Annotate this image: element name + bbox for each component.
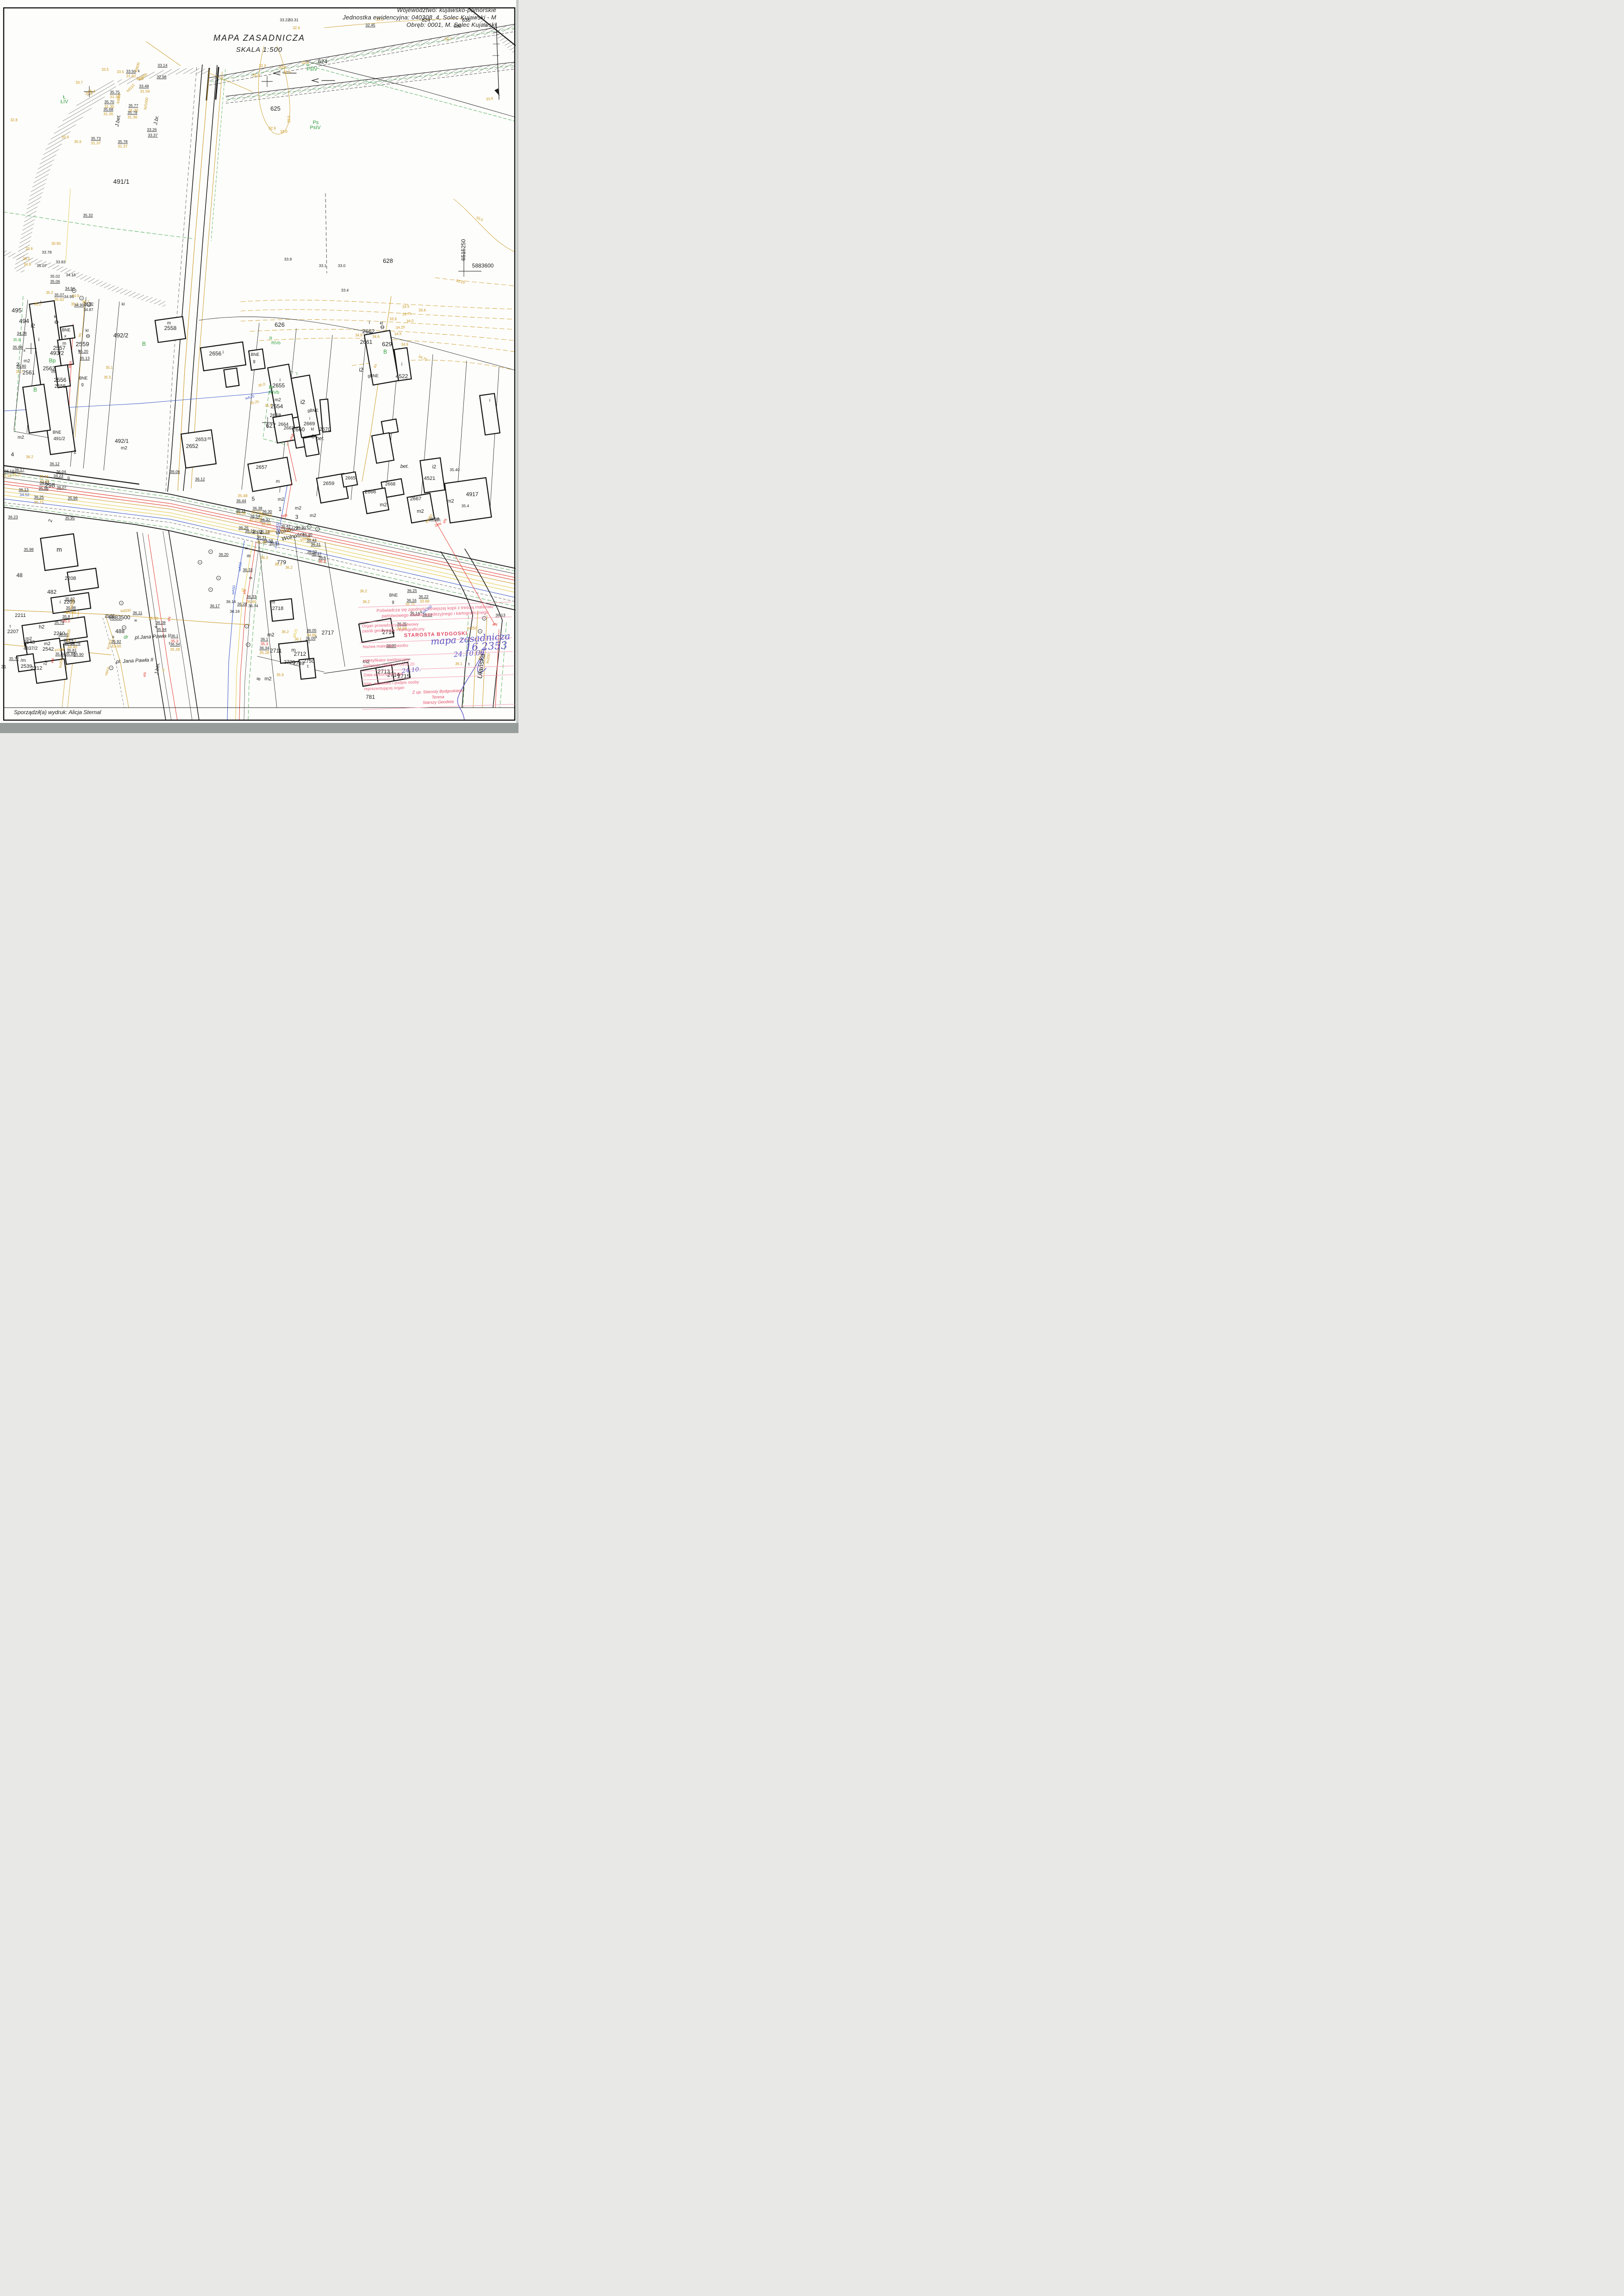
landuse-label: R xyxy=(269,336,273,341)
houses-label: 4 xyxy=(11,451,14,458)
header-district: Obręb: 0001, M. Solec Kujawski xyxy=(343,21,496,29)
coords-label: 6515250 xyxy=(460,239,467,261)
elevations-label: 35.8 xyxy=(319,559,326,564)
parcels-label: 2750 xyxy=(303,659,314,664)
elevations-label: 31.36 xyxy=(127,115,137,119)
parcels-label: 2211 xyxy=(15,613,26,618)
landuse-label: g xyxy=(67,475,69,480)
sheet-header: Województwo: kujawsko-pomorskie Jednostk… xyxy=(343,6,496,29)
houses-label: 3 xyxy=(295,514,299,520)
elevations-label: 35.58 xyxy=(148,616,158,621)
parcels-label: 2539 xyxy=(21,664,32,669)
stamp-id-value: P.0403.20 xyxy=(396,662,415,667)
landuse-label: m xyxy=(56,546,62,553)
elevations-label: 36.17 xyxy=(210,604,220,608)
landuse-label: i xyxy=(369,320,370,325)
elevations-label: 35.94 xyxy=(156,627,167,632)
landuse-label: m xyxy=(276,479,280,484)
elevations-label: 33.31 xyxy=(288,18,299,22)
contours-label: 33.0 xyxy=(287,116,291,123)
header-voivodeship: Województwo: kujawsko-pomorskie xyxy=(343,6,496,14)
elevations-label: 36.34 xyxy=(170,642,180,647)
contours-label: 32.9 xyxy=(293,26,300,30)
landuse-label: BNE xyxy=(79,376,88,380)
landuse-label: i xyxy=(280,378,281,383)
landuse-label: h2 xyxy=(39,624,44,630)
landuse-label: m2 xyxy=(18,435,24,440)
parcels-label: 4522 xyxy=(396,373,408,380)
contours-label: 33.6 xyxy=(25,247,33,251)
streets-label: bet. xyxy=(316,436,325,442)
elevations-label: 33.78 xyxy=(42,250,52,255)
landuse-label: gBNE xyxy=(368,373,379,378)
elevations-label: 35.73 xyxy=(91,136,101,141)
parcels-label: 2666 xyxy=(365,489,376,495)
elevations-label: 36.20 xyxy=(219,552,229,557)
elevations-label: 35.68 xyxy=(103,107,113,112)
contours-label: 35.6 xyxy=(13,338,20,342)
contours-label: 34.5 xyxy=(394,331,402,336)
landuse-label: m2 xyxy=(380,502,387,508)
contours-label: 35.2 xyxy=(46,291,53,295)
contours-label: 36.2 xyxy=(26,455,33,459)
landuse-label: /m xyxy=(20,658,25,663)
contours-label: 32.9 xyxy=(269,126,276,131)
map-title: MAPA ZASADNICZA xyxy=(204,33,315,43)
contours-label: 36.2 xyxy=(281,630,289,634)
elevations-label: 36.1 xyxy=(171,634,179,638)
elevations-label: 36.18 xyxy=(230,609,240,614)
parcels-label: 2556 xyxy=(54,377,67,383)
sheet-footer: Sporządził(a) wydruk: Alicja Sternal xyxy=(14,709,101,716)
parcels-label: 2555 xyxy=(55,384,66,389)
parcels-label: 48 xyxy=(16,572,23,579)
contours-label: 36.2 xyxy=(362,600,370,604)
elevations-label: 32.34 xyxy=(261,522,271,526)
contours-label: 34.6 xyxy=(372,335,380,339)
parcels-label: 627 xyxy=(266,422,276,429)
contours-label: 31.9 xyxy=(283,70,291,75)
parcels-label: 4917 xyxy=(466,491,479,498)
elevations-label: 34.87 xyxy=(83,307,94,312)
elevations-label: 36.28 xyxy=(237,602,247,606)
elevations-label: 34.94 xyxy=(65,286,75,291)
elevations-label: 34.52 xyxy=(19,492,30,497)
landuse-label: i xyxy=(38,337,39,342)
landuse-label: BNE xyxy=(53,430,62,435)
landuse-label: m xyxy=(291,647,295,653)
contours-label: 35.5 xyxy=(265,404,272,408)
landuse-label: i xyxy=(309,416,310,421)
elevations-label: 34.23 xyxy=(53,473,63,478)
landuse-label: PsIV xyxy=(310,125,321,131)
contours-label: 33.5 xyxy=(101,68,109,72)
contours-label: 36.2 xyxy=(360,589,367,593)
elevations-label: 36.33 xyxy=(246,594,256,599)
parcels-label: 492/2 xyxy=(113,332,129,339)
parcels-label: 2667 xyxy=(410,496,421,502)
elevations-label: 36.51 xyxy=(269,541,280,545)
elevations-label: 36.17 xyxy=(14,467,25,472)
elevations-label: 35.70 xyxy=(104,100,114,104)
contours-label: 34.0 xyxy=(406,318,414,323)
elevations-label: 31.37 xyxy=(118,144,128,149)
elevations-label: 35.78 xyxy=(118,139,128,144)
houses-label: 1 xyxy=(279,506,282,512)
parcels-label: 626 xyxy=(275,321,285,328)
elevations-label: 35.28 xyxy=(170,647,180,652)
utilities-label: eN xyxy=(142,672,147,678)
elevations-label: 35.51 xyxy=(262,513,272,517)
stamp-sign-label1: Imię, nazwisko i podpis osoby xyxy=(364,679,419,686)
contours-label: 33.0 xyxy=(279,65,286,69)
elevations-label: 36.25 xyxy=(407,588,417,593)
elevations-label: 35.05 xyxy=(306,636,316,641)
contours-label: 33.0 xyxy=(280,130,287,134)
elevations-label: 36.23 xyxy=(8,515,18,519)
streets-label: dr xyxy=(124,635,129,640)
elevations-label: 36.31 xyxy=(311,542,321,547)
landuse-label: m xyxy=(62,341,66,346)
elevations-label: 35.96 xyxy=(68,496,78,500)
parcels-label: 2559 xyxy=(76,341,89,348)
contours-label: 36.3 xyxy=(261,556,268,560)
scan-edge-bottom xyxy=(0,723,518,733)
elevations-label: 36.07 xyxy=(56,485,67,490)
elevations-label: 35.79 xyxy=(54,620,64,625)
elevations-label: 36.05 xyxy=(306,628,317,633)
landuse-label: kl xyxy=(54,314,57,319)
parcels-label: 2661 xyxy=(360,339,373,345)
parcels-label: 2659 xyxy=(323,481,334,486)
landuse-label: g xyxy=(81,382,83,386)
elevations-label: 35.95 xyxy=(65,516,75,520)
stamp-name-label: Nazwa materiału zasobu xyxy=(362,643,408,649)
elevations-label: 33.48 xyxy=(139,84,149,88)
contours-label: 33.5 xyxy=(402,304,410,309)
elevations-label: 36.16 xyxy=(226,599,236,604)
parcels-label: 2656 xyxy=(209,350,222,357)
parcels-label: 2668 xyxy=(385,482,396,487)
parcels-label: 2717 xyxy=(322,629,334,636)
parcels-label: 4837/2 xyxy=(24,646,38,651)
elevations-label: 35.77 xyxy=(128,103,138,108)
elevations-label: 32.98 xyxy=(156,75,167,79)
landuse-label: BNE xyxy=(62,328,71,332)
elevations-label: 33.69 xyxy=(419,599,430,604)
elevations-label: 33.14 xyxy=(157,63,168,68)
landuse-label: m2 xyxy=(121,446,127,451)
stamp-id-label2: materiału zasobu xyxy=(363,662,395,668)
sheet-title: MAPA ZASADNICZA SKALA 1:500 xyxy=(204,33,315,54)
landuse-label: m2 xyxy=(310,513,316,518)
landuse-label: i2 xyxy=(300,398,305,405)
elevations-label: 33.26 xyxy=(147,127,157,132)
parcels-label: 488 xyxy=(115,628,125,635)
parcels-label: 625 xyxy=(270,105,281,112)
elevations-label: 33.9 xyxy=(284,257,292,261)
elevations-label: 36.1 xyxy=(261,637,269,641)
landuse-label: gBNE xyxy=(307,408,319,413)
contours-label: 33.5 xyxy=(117,70,124,74)
elevations-label: 36.11 xyxy=(133,610,143,615)
landuse-label: PsIV xyxy=(306,67,318,72)
elevations-label: 34.52 xyxy=(39,480,50,485)
landuse-label: m2 xyxy=(267,632,274,638)
parcels-label: 2652 xyxy=(186,443,199,449)
landuse-label: m2 xyxy=(295,506,301,511)
elevations-label: 35.32 xyxy=(236,511,246,516)
parcels-label: 2665 xyxy=(345,476,356,481)
contours-label: 33.9 xyxy=(62,135,69,139)
contours-label: 35.5 xyxy=(104,375,111,380)
elevations-label: 35.96 xyxy=(38,486,49,491)
contours-label: 35.5 xyxy=(85,92,93,96)
landuse-label: m2 xyxy=(264,676,271,682)
elevations-label: 36.31 xyxy=(256,535,267,540)
elevations-label: 36.04 xyxy=(56,469,66,474)
landuse-label: RIVb xyxy=(271,341,281,345)
parcels-label: 2657 xyxy=(256,465,267,470)
elevations-label: 35.06 xyxy=(50,279,60,284)
contours-label: 35.9 xyxy=(276,673,284,677)
contours-label: 34.25 xyxy=(395,325,405,330)
elevations-label: 35.90 xyxy=(74,652,84,657)
parcels-label: 2212 xyxy=(31,666,42,671)
houses-label: 5 xyxy=(252,496,255,502)
parcels-label: 2749 xyxy=(293,661,304,666)
elevations-label: 36.12 xyxy=(50,461,60,466)
contours-label: 35.27 xyxy=(12,473,22,477)
contours-label: 34.8 xyxy=(355,333,362,337)
elevations-label: 35.4 xyxy=(462,504,469,508)
contours-label: 33.0 xyxy=(301,61,309,65)
elevations-label: 36.12 xyxy=(195,477,205,481)
elevations-label: 31.92 xyxy=(126,74,136,78)
elevations-label: 36.06 xyxy=(170,469,180,474)
parcels-label: 2558 xyxy=(164,325,177,331)
elevations-label: 33.83 xyxy=(56,260,66,264)
parcels-label: 482 xyxy=(47,589,56,595)
parcels-label: 495 xyxy=(12,307,22,314)
parcels-label: 2655 xyxy=(273,382,285,389)
landuse-label: Br xyxy=(269,385,274,390)
elevations-label: 31.35 xyxy=(103,112,113,116)
elevations-label: 36.13 xyxy=(19,487,29,492)
contours-label: 33.9 xyxy=(389,317,397,321)
contours-label: 35.1 xyxy=(106,366,113,370)
parcels-label: 2662 xyxy=(362,328,375,335)
landuse-label: m2 xyxy=(417,509,424,514)
elevations-label: 36.33 xyxy=(243,567,253,572)
landuse-label: w xyxy=(134,618,137,622)
parcels-label: 2208 xyxy=(65,576,76,581)
contours-label: 34.9 xyxy=(24,262,31,267)
landuse-label: m2 xyxy=(278,497,284,502)
contours-label: 33.75 xyxy=(402,311,412,317)
parcels-label: 492/1 xyxy=(115,438,129,444)
elevations-label: 35.02 xyxy=(50,274,60,279)
parcels-label: 2660 xyxy=(293,426,305,433)
elevations-label: 33.0 xyxy=(338,263,346,268)
landuse-label: kl xyxy=(311,427,314,431)
elevations-label: 35.15 xyxy=(34,500,44,504)
landuse-label: m2 xyxy=(447,498,454,504)
landuse-label: g xyxy=(392,599,394,604)
landuse-label: m xyxy=(51,369,55,374)
elevations-label: 35.8 xyxy=(62,614,70,619)
elevations-label: 35.59 xyxy=(281,529,291,533)
parcels-label: 2561 xyxy=(23,369,35,376)
utilities-label: g xyxy=(162,667,164,672)
elevations-label: 35.13 xyxy=(80,356,90,361)
elevations-label: 36.25 xyxy=(34,495,44,499)
landuse-label: i2 xyxy=(359,367,363,373)
parcels-label: 491/2 xyxy=(53,436,65,442)
elevations-label: 35.68 xyxy=(12,345,23,349)
elevations-label: 35.84 xyxy=(55,652,65,656)
parcels-label: 491/1 xyxy=(113,178,129,185)
landuse-label: i xyxy=(401,362,402,367)
elevations-label: 35.72 xyxy=(9,656,19,661)
landuse-label: m xyxy=(167,321,171,326)
elevations-label: 34.15 xyxy=(66,273,76,277)
landuse-label: m2 xyxy=(25,636,32,641)
elevations-label: 33.00 xyxy=(111,644,121,648)
landuse-label: RIVb xyxy=(269,390,280,395)
stamp-sign-label2: reprezentującej organ xyxy=(364,685,404,691)
contours-label: 35.7 xyxy=(16,370,23,374)
streets-label: bet. xyxy=(400,464,409,469)
landuse-label: m2 xyxy=(44,641,50,647)
scan-edge-right xyxy=(516,0,518,733)
elevations-label: 36.42 xyxy=(281,524,291,529)
landuse-label: B xyxy=(383,348,387,355)
parcels-label: 2711 xyxy=(270,647,282,654)
landuse-label: kl xyxy=(122,302,125,306)
landuse-label: i xyxy=(60,600,61,605)
elevations-label: 34.95 xyxy=(64,294,74,299)
elevations-label: 36.22 xyxy=(418,594,429,599)
elevations-label: 36.08 xyxy=(156,620,166,625)
landuse-label: i2 xyxy=(432,464,437,470)
elevations-label: 33.1 xyxy=(319,263,327,268)
utilities-label: eN xyxy=(167,616,172,622)
elevations-label: 34.90 xyxy=(83,301,94,306)
parcels-label: 2718 xyxy=(272,606,283,611)
elevations-label: 34.28 xyxy=(17,331,27,336)
elevations-label: 35.07 xyxy=(37,263,47,268)
elevations-label: 31.37 xyxy=(91,141,101,145)
utilities-label: ks xyxy=(77,333,82,337)
elevations-label: 36.30 xyxy=(296,525,306,530)
landuse-label: i xyxy=(489,398,490,403)
elevations-label: 35.98 xyxy=(24,547,34,552)
elevations-label: 35.28 xyxy=(259,650,269,655)
landuse-label: m xyxy=(207,436,211,441)
elevations-label: 35.80 xyxy=(16,364,26,368)
landuse-label: g xyxy=(253,359,255,363)
elevations-label: 33.37 xyxy=(148,133,158,137)
parcels-label: 628 xyxy=(383,257,393,264)
elevations-label: 34.90 xyxy=(74,303,84,307)
elevations-label: 36.34 xyxy=(259,646,269,650)
elevations-label: 35.07 xyxy=(54,292,64,297)
landuse-label: B xyxy=(142,341,146,347)
landuse-label: ŁIV xyxy=(61,99,69,105)
landuse-label: Bp xyxy=(49,357,56,364)
elevations-label: 35.20 xyxy=(78,349,88,354)
parcels-label: 2653 xyxy=(195,437,206,442)
contours-label: 30.90 xyxy=(51,242,61,246)
contours-label: 35.6 xyxy=(74,140,81,144)
parcels-label: 2670 xyxy=(319,427,331,432)
contours-label: 32.8 xyxy=(10,118,18,122)
parcels-label: 4521 xyxy=(424,476,435,481)
elevations-label: 31.56 xyxy=(140,89,150,93)
parcels-label: 2542 xyxy=(43,647,54,652)
elevations-label: 36.34 xyxy=(248,604,258,608)
contours-label: 32.9 xyxy=(259,64,266,68)
contours-label: 33.6 xyxy=(418,308,426,312)
elevations-label: 35.78 xyxy=(127,110,137,115)
parcels-label: 2658 xyxy=(270,413,281,418)
landuse-label: i xyxy=(223,350,224,355)
landuse-label: x xyxy=(64,334,67,338)
header-unit: Jednostka ewidencyjna: 040308_4, Solec K… xyxy=(343,14,496,21)
elevations-label: 33.4 xyxy=(341,288,349,292)
elevations-label: 35.40 xyxy=(450,467,460,472)
landuse-label: B xyxy=(33,386,37,393)
houses-label: 2 xyxy=(74,449,76,455)
parcels-label: 2654 xyxy=(271,403,283,410)
contours-label: 35.0 xyxy=(23,257,30,261)
elevations-label: 35.62 xyxy=(54,297,64,302)
utilities-label: wA32 xyxy=(275,522,280,532)
contours-label: 36.2 xyxy=(285,566,293,570)
landuse-label: w xyxy=(244,546,248,550)
landuse-label: i2 xyxy=(31,323,35,329)
contours-label: 33.0 xyxy=(252,74,260,78)
contours-label: 34.9 xyxy=(401,342,408,347)
parcels-label: 494 xyxy=(19,317,29,324)
contours-label: 33.7 xyxy=(75,81,83,85)
coords-label: 5883600 xyxy=(472,262,494,269)
parcels-label: 2712 xyxy=(294,651,306,657)
landuse-label: m2 xyxy=(275,398,281,403)
parcels-label: 2207 xyxy=(7,629,19,635)
landuse-label: kl xyxy=(86,328,89,333)
contours-label: 33.76 xyxy=(39,475,49,479)
parcels-label: 624 xyxy=(318,58,327,65)
landuse-label: t xyxy=(307,664,309,669)
parcels-label: 2669 xyxy=(304,421,315,427)
landuse-label: BNE xyxy=(251,352,260,357)
landuse-label: m xyxy=(271,600,275,605)
elevations-label: 35.09 xyxy=(256,540,267,544)
elevations-label: 35.32 xyxy=(83,213,93,218)
contours-label: 35.2 xyxy=(34,302,41,306)
elevations-label: 35.93 xyxy=(105,613,115,618)
map-scale: SKALA 1:500 xyxy=(204,46,315,54)
elevations-label: 36.18 xyxy=(4,469,14,473)
landuse-label: kl xyxy=(380,321,383,325)
elevations-label: 36.44 xyxy=(236,498,246,503)
landuse-label: BNE xyxy=(389,593,398,597)
utilities-label: eN xyxy=(50,658,55,664)
landuse-label: m2 xyxy=(24,359,30,364)
stamp-date-label: Data wykonania kopii xyxy=(363,671,403,677)
